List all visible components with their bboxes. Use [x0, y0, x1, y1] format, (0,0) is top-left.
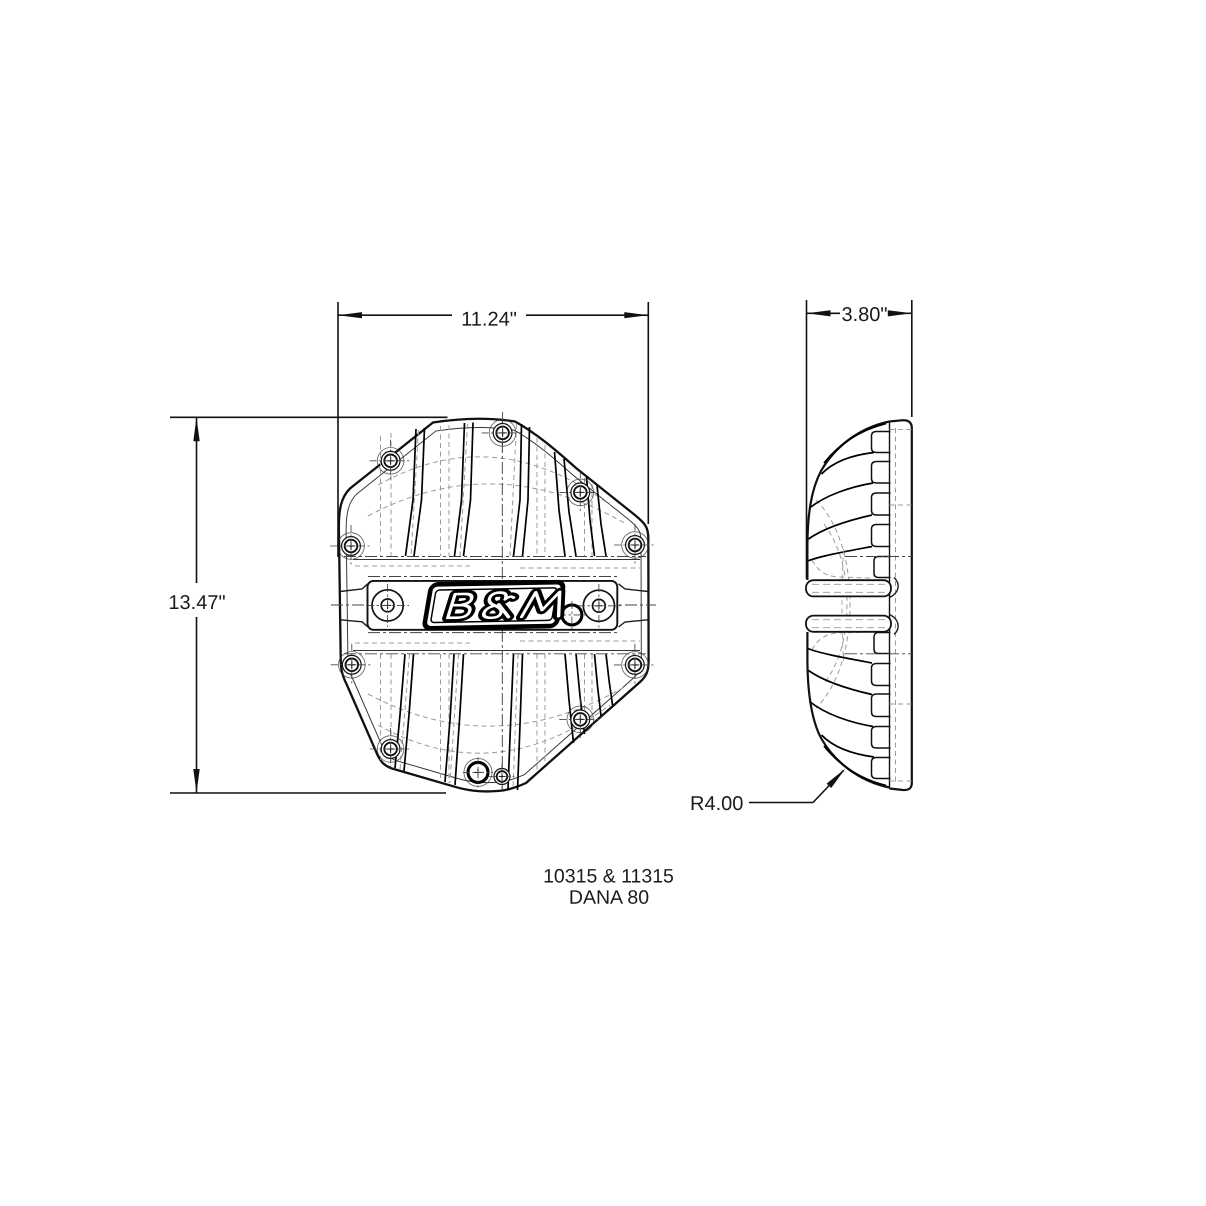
svg-text:13.47": 13.47": [168, 592, 225, 614]
svg-text:10315 & 11315: 10315 & 11315: [543, 865, 674, 887]
svg-text:DANA 80: DANA 80: [569, 887, 649, 909]
svg-text:3.80": 3.80": [841, 304, 887, 326]
svg-text:R4.00: R4.00: [690, 793, 743, 815]
svg-text:11.24": 11.24": [461, 309, 517, 331]
